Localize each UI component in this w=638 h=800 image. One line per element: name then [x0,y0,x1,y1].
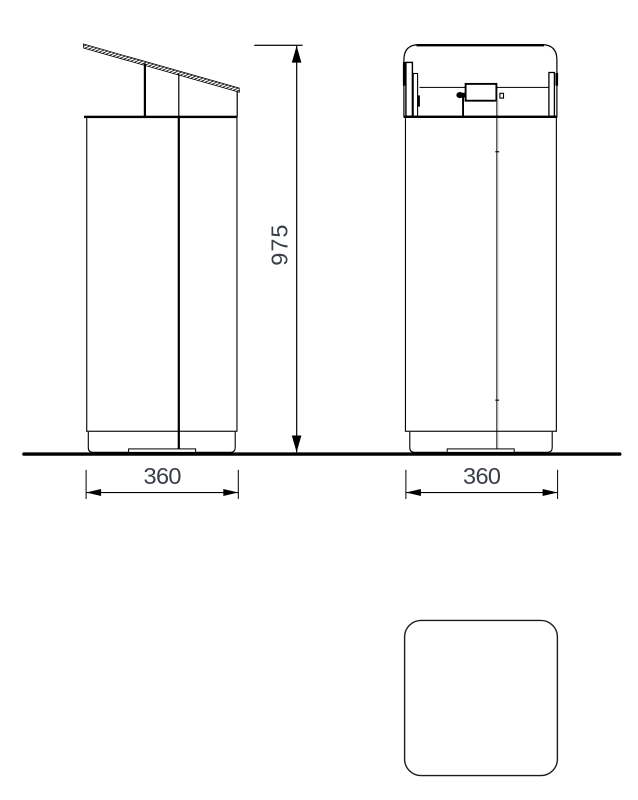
svg-text:975: 975 [267,223,293,265]
svg-text:360: 360 [463,463,501,489]
svg-text:360: 360 [143,463,181,489]
